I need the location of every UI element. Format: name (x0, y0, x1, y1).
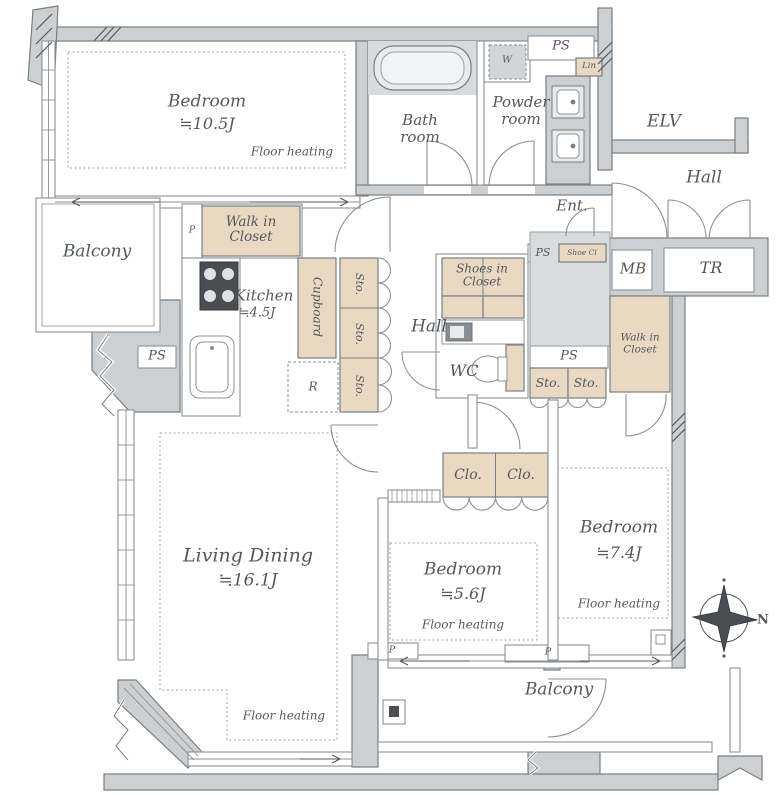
wall-fixture-box (651, 630, 671, 655)
p-bottom-label-2: P (545, 648, 551, 659)
door-bathroom (427, 141, 472, 186)
ps-right-label: PS (560, 350, 578, 365)
shoe-cl-label: Shoe Cl (567, 249, 596, 257)
bedroom-main-label: Bedroom (168, 92, 246, 111)
sto-folding-doors (378, 258, 392, 412)
balcony-bottom-label: Balcony (525, 680, 593, 699)
sto-right-label-1: Sto. (536, 376, 561, 390)
wc-cabinet (506, 345, 524, 391)
floor-plan: Bedroom ≒10.5J Floor heating Bath room P… (0, 0, 778, 795)
door-powder-room (489, 141, 534, 186)
entrance-label: Ent. (556, 198, 587, 215)
clo-folding-doors (443, 497, 548, 510)
bedroom-main-heating: Floor heating (251, 145, 333, 158)
stove-icon (200, 262, 238, 310)
balcony-left-label: Balcony (63, 242, 131, 261)
bedroom-3-size: ≒7.4J (596, 544, 641, 562)
sto-label-3: Sto. (353, 375, 365, 397)
ps-top-label: PS (552, 40, 570, 55)
hall-upper-label: Hall (686, 168, 722, 187)
bottom-right-flag (718, 756, 762, 780)
door-tr-right (709, 200, 750, 238)
bedroom-3-label: Bedroom (580, 518, 658, 537)
balcony-rail-right (730, 668, 740, 752)
door-tr-left (668, 200, 706, 238)
wic-right-label: Walk in Closet (613, 332, 667, 356)
door-wic-bedroom-3 (626, 394, 666, 436)
balcony-divider (528, 752, 600, 774)
linen-label: Lin (582, 62, 596, 72)
door-bedroom-2 (473, 402, 520, 449)
bedroom-2-size: ≒5.6J (440, 585, 485, 603)
p-bottom-label-1: P (389, 646, 395, 657)
tr-label: TR (700, 259, 723, 277)
clo-label-1: Clo. (454, 468, 482, 484)
bathroom-label: Bath room (392, 112, 448, 146)
sto-label-1: Sto. (353, 273, 365, 295)
ld-step-wall (352, 655, 378, 767)
compass-icon (693, 578, 757, 657)
bedroom-3-heating: Floor heating (578, 597, 660, 610)
door-hall-living (331, 425, 378, 472)
elevator-label: ELV (647, 112, 681, 131)
bedroom-2-label: Bedroom (424, 560, 502, 579)
elv-corridor-wall (612, 140, 748, 153)
washer-label: W (502, 56, 512, 67)
shoes-closet-label: Shoes in Closet (443, 263, 521, 290)
living-dining-label: Living Dining (183, 545, 313, 566)
door-wc (402, 352, 440, 390)
east-wall (672, 296, 685, 668)
hall-inner-label: Hall (411, 317, 447, 336)
powder-room-label: Powder room (483, 94, 559, 128)
living-dining-size: ≒16.1J (219, 571, 278, 590)
ps-ent-label: PS (536, 247, 551, 259)
fridge-label: R (308, 380, 317, 393)
compass-north-label: N (757, 614, 769, 629)
kitchen-size: ≒4.5J (239, 307, 276, 322)
bottom-band (104, 774, 718, 790)
living-dining-heating: Floor heating (243, 709, 325, 722)
sto-right-folding-doors (530, 398, 606, 408)
cupboard-label: Cupboard (310, 277, 323, 337)
bedroom-main-size: ≒10.5J (179, 115, 234, 133)
door-entry (612, 183, 667, 238)
clo-label-2: Clo. (507, 468, 535, 484)
sto-label-2: Sto. (353, 323, 365, 345)
p-left-label: P (189, 226, 195, 237)
bedroom-2-heating: Floor heating (422, 618, 504, 631)
ps-left-label: PS (148, 350, 166, 365)
kitchen-label: Kitchen (235, 288, 294, 305)
balcony-rail (378, 742, 712, 752)
wic-top-label: Walk in Closet (209, 215, 293, 245)
wc-label: WC (450, 362, 479, 380)
balcony-left-outline (36, 198, 160, 332)
sto-right-label-2: Sto. (574, 376, 599, 390)
mb-label: MB (620, 261, 646, 278)
